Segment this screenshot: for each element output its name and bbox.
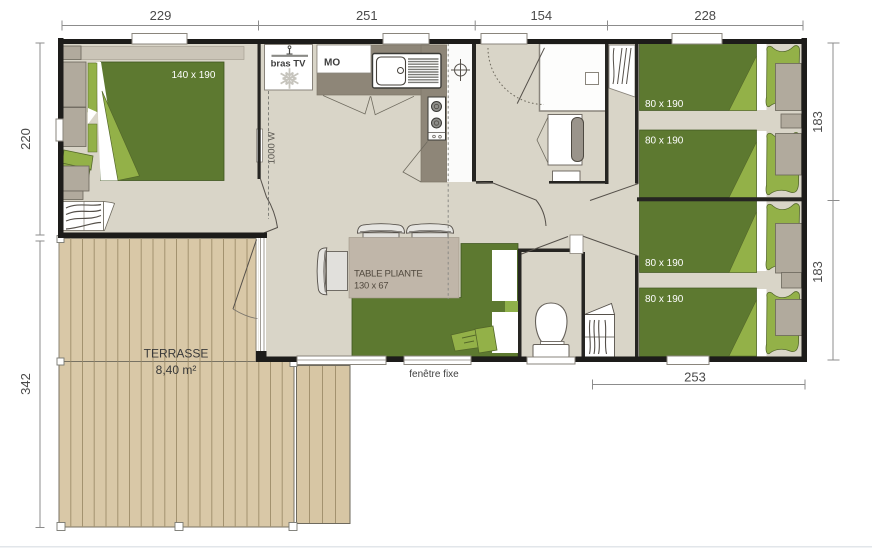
svg-text:MO: MO — [324, 58, 340, 69]
svg-text:80 x 190: 80 x 190 — [645, 258, 684, 269]
svg-text:229: 229 — [150, 8, 172, 23]
svg-text:80 x 190: 80 x 190 — [645, 99, 684, 110]
svg-text:220: 220 — [18, 128, 33, 150]
svg-text:TERRASSE: TERRASSE — [144, 347, 209, 361]
svg-text:140 x 190: 140 x 190 — [172, 70, 216, 81]
svg-text:1000 W: 1000 W — [267, 132, 278, 165]
svg-text:183: 183 — [810, 111, 825, 133]
svg-text:253: 253 — [684, 370, 706, 385]
svg-text:8,40 m²: 8,40 m² — [156, 363, 197, 377]
svg-text:130 x 67: 130 x 67 — [354, 280, 388, 291]
svg-text:342: 342 — [18, 373, 33, 395]
svg-text:228: 228 — [694, 8, 716, 23]
svg-text:80 x 190: 80 x 190 — [645, 136, 684, 147]
svg-text:154: 154 — [530, 8, 552, 23]
svg-text:251: 251 — [356, 8, 378, 23]
svg-text:bras TV: bras TV — [271, 59, 307, 70]
svg-text:80 x 190: 80 x 190 — [645, 294, 684, 305]
svg-text:TABLE PLIANTE: TABLE PLIANTE — [354, 269, 422, 280]
svg-text:183: 183 — [810, 261, 825, 283]
svg-text:fenêtre fixe: fenêtre fixe — [409, 369, 459, 380]
